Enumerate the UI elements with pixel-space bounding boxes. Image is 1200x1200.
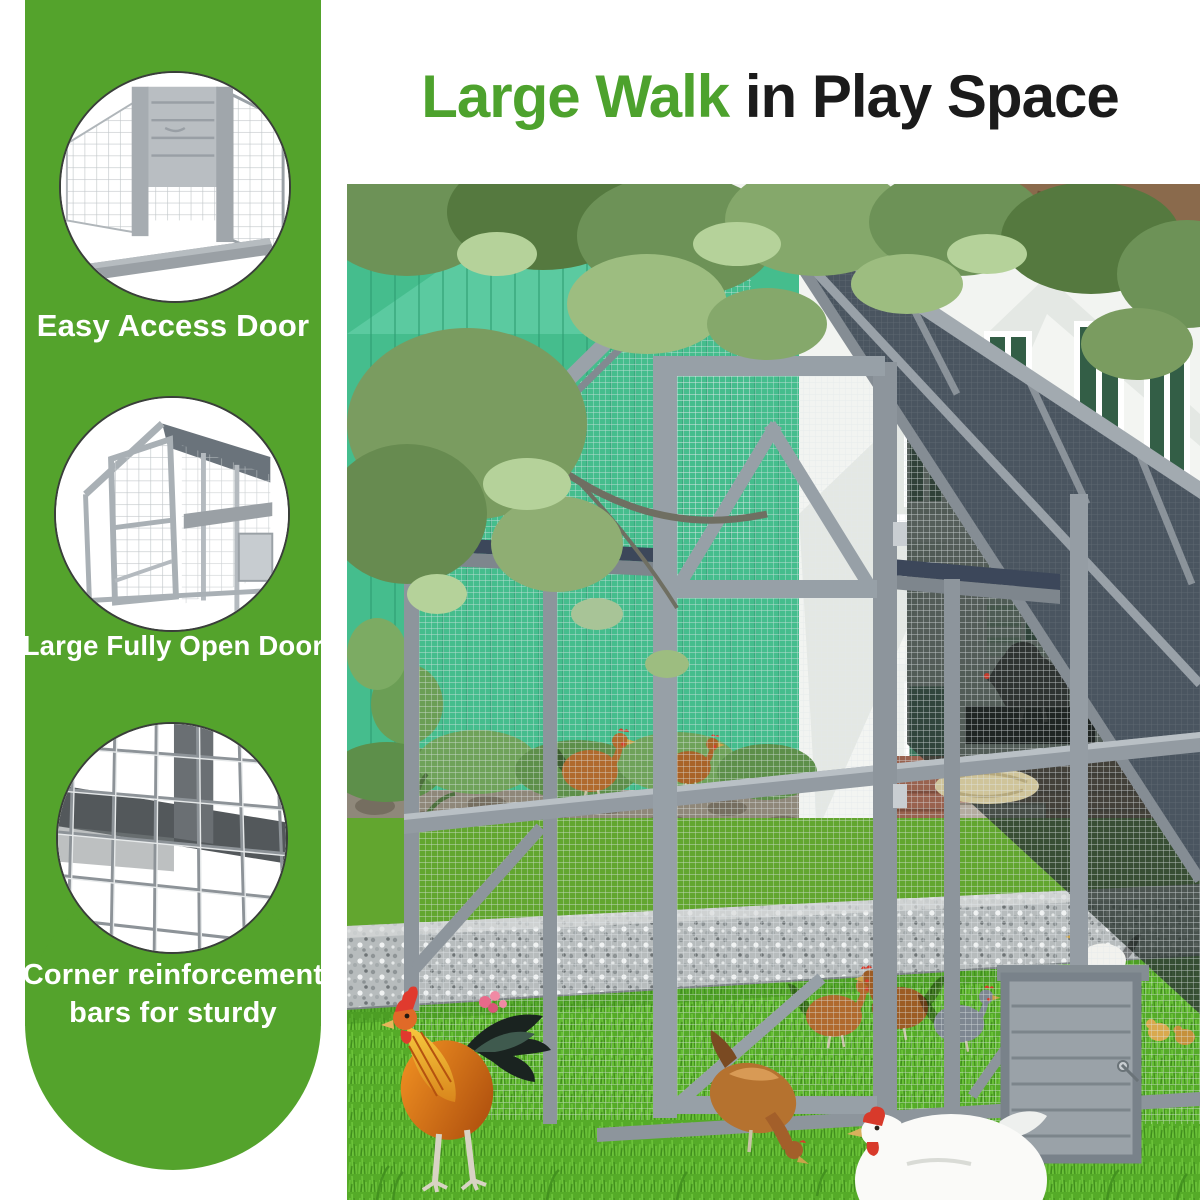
callout-corner-reinforcement-image [56,722,288,954]
easy-access-door-art [61,73,289,301]
white-hen-foreground [847,1107,1047,1200]
page-title: Large Walk in Play Space [340,62,1200,131]
caption-line-2: bars for sturdy [18,994,328,1032]
callout-caption-open-door: Large Fully Open Door [18,630,328,662]
callout-easy-access-door-image [59,71,291,303]
title-highlight: Large Walk [421,63,729,130]
open-door-art [56,398,288,630]
caption-line-1: Corner reinforcement [18,956,328,994]
callout-caption-corner-reinforcement: Corner reinforcement bars for sturdy [18,956,328,1032]
product-photo [347,184,1200,1200]
page-root: Easy Access Door Large Fully Open Door [0,0,1200,1200]
title-rest: in Play Space [745,63,1119,130]
callout-caption-easy-access-door: Easy Access Door [18,308,328,344]
callout-open-door-image [54,396,290,632]
corner-reinforcement-art [58,724,286,952]
